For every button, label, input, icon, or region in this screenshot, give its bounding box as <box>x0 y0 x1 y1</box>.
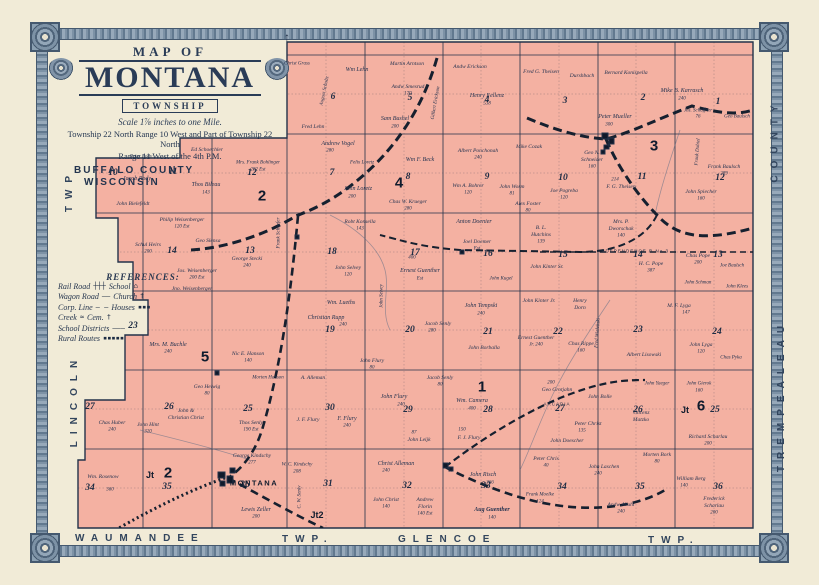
section-number: 28 <box>483 405 493 415</box>
section-number: 3 <box>563 96 568 106</box>
parcel-label: John Bolle <box>588 394 612 400</box>
parcel-label: 160 <box>697 197 705 202</box>
section-number: 8 <box>406 172 411 182</box>
parcel-label: Matzko <box>633 417 649 423</box>
plat-map-page: DOVER TWP. WAUMANDEE TWP. GLENCOE TWP. T… <box>0 0 819 585</box>
section-number: 2 <box>641 93 646 103</box>
school-district-number: Jt2 <box>310 510 323 520</box>
section-number: 36 <box>713 482 723 492</box>
parcel-label: 143 <box>202 191 210 196</box>
parcel-label: Christ Alleman <box>378 461 414 467</box>
section-number: 27 <box>85 402 95 412</box>
section-number: 23 <box>633 325 643 335</box>
parcel-label: Peter Christ <box>574 421 601 427</box>
parcel-label: Martin Arntson <box>390 61 424 67</box>
section-number: 17 <box>410 248 420 258</box>
parcel-label: 140 <box>488 516 496 521</box>
parcel-label: 240 <box>339 323 347 328</box>
parcel-label: John Schman <box>685 281 712 286</box>
section-number: 21 <box>483 327 493 337</box>
parcel-label: Fred G. Theisen <box>523 69 559 75</box>
section-number: 7 <box>330 168 335 178</box>
section-number: 14 <box>633 250 643 260</box>
parcel-label: Frank Baulsch <box>708 164 741 170</box>
parcel-label: Albert Ponchonah <box>458 148 498 154</box>
parcel-label: Andw Erickson <box>453 64 486 70</box>
parcel-label: John Leijk <box>407 437 430 443</box>
parcel-label: Nic E. Hanson <box>232 351 264 357</box>
parcel-label: 200 <box>348 195 356 200</box>
parcel-label: Aug Guenther <box>474 507 510 513</box>
parcel-label: Lewis Zeller <box>241 507 271 513</box>
parcel-label: Frank Dubiel <box>694 138 701 165</box>
parcel-label: 240 <box>594 472 602 477</box>
parcel-label: 200 <box>710 511 718 516</box>
parcel-label: William Berg <box>677 476 706 482</box>
parcel-label: 40 <box>544 464 549 469</box>
parcel-label: Wm Lehn <box>346 67 369 73</box>
parcel-label: 76 <box>696 115 701 120</box>
section-number: 26 <box>633 405 643 415</box>
parcel-label: Ed Schoechler <box>191 147 223 153</box>
parcel-label: 400 <box>468 407 476 412</box>
section-number: 13 <box>713 250 723 260</box>
parcel-label: John Loretz <box>344 186 372 192</box>
parcel-label: 208 <box>293 470 301 475</box>
parcel-label: Mike Cozak <box>516 144 542 150</box>
parcel-label: Peter Rody <box>130 155 152 160</box>
parcel-label: Andrew Vogel <box>321 141 354 147</box>
parcel-label: Christian Rupp <box>308 315 345 321</box>
parcel-label: 120 <box>560 196 568 201</box>
section-number: 23 <box>128 321 138 331</box>
section-number: 5 <box>408 93 413 103</box>
parcel-label: Schul Heirs <box>135 242 161 248</box>
parcel-label: Frank Schaefer <box>277 218 282 249</box>
parcel-label: Christ Grass <box>284 62 310 67</box>
parcel-label: Felix Loretz <box>350 161 374 166</box>
parcel-label: 240 <box>617 510 625 515</box>
parcel-label: Henry <box>573 298 587 304</box>
section-number: 20 <box>405 325 415 335</box>
parcel-label: Frederick <box>703 496 724 502</box>
parcel-label: 120 Est <box>174 225 189 230</box>
parcel-label: Geo N. <box>584 150 600 156</box>
school-district-number: Jt <box>146 470 154 480</box>
parcel-label: Chas Huber <box>99 420 126 426</box>
section-number: 18 <box>327 247 337 257</box>
parcel-label: 387 <box>647 269 655 274</box>
section-number: 16 <box>483 249 493 259</box>
parcel-label: John Christ <box>373 497 399 503</box>
parcel-label: Mrs. Frank Bohlinger <box>236 161 280 166</box>
parcel-label: Albert Lisowski <box>627 352 661 358</box>
section-number: 12 <box>247 168 257 178</box>
parcel-label: John Kugel <box>490 277 513 282</box>
school-district-number: 2 <box>164 465 172 482</box>
parcel-label: 240 <box>108 428 116 433</box>
parcel-label: Jno. Weisenberger <box>172 286 213 292</box>
parcel-label: George Stecki <box>232 256 263 262</box>
parcel-label: Jacob Senly <box>427 375 453 381</box>
parcel-label: 120 <box>697 350 705 355</box>
section-number: 22 <box>553 327 563 337</box>
parcel-label: Peter Chris <box>533 456 559 462</box>
section-number: 34 <box>557 482 567 492</box>
parcel-label: Dorn <box>574 305 586 311</box>
parcel-label: 80 <box>370 366 375 371</box>
parcel-label: Bernard Konispella <box>604 70 647 76</box>
parcel-label: George Kindschy <box>233 453 271 459</box>
parcel-label: Wm A. Bohrer <box>452 183 483 189</box>
parcel-label: Peter Mueller <box>598 114 632 120</box>
parcel-label: H. C. Pope <box>639 261 663 267</box>
section-number: 31 <box>323 479 333 489</box>
parcel-label: Frank Moelke <box>526 493 554 498</box>
parcel-label: August Schultz <box>319 76 330 106</box>
parcel-label: Wm. Lueths <box>327 300 355 306</box>
school-district-number: Jt <box>681 405 689 415</box>
parcel-label: Hutchins <box>531 232 551 238</box>
parcel-label: 140 Est <box>417 512 432 517</box>
parcel-label: 240 <box>477 312 485 317</box>
parcel-label: 160 <box>695 389 703 394</box>
parcel-label: 120 <box>344 273 352 278</box>
parcel-label: F. G. Theisen <box>606 184 635 190</box>
parcel-label: Chas W. Krueger <box>389 199 427 205</box>
section-number: 11 <box>638 172 647 182</box>
parcel-label: 280 <box>326 149 334 154</box>
parcel-label: 81 <box>510 192 515 197</box>
parcel-label: Wm F. Beck <box>406 157 434 163</box>
parcel-label: 200 <box>704 442 712 447</box>
parcel-label: 150 <box>458 428 466 433</box>
parcel-label: Ernest Guenther <box>518 335 555 341</box>
section-number: 25 <box>243 404 253 414</box>
parcel-label: B. L. <box>536 225 547 231</box>
parcel-label: Florin <box>418 504 432 510</box>
school-district-number: 5 <box>201 349 209 366</box>
parcel-label: F. J. Flury <box>458 435 481 441</box>
parcel-label: Jos. Weisenberger <box>177 268 217 274</box>
parcel-label: 200 Est <box>189 276 204 281</box>
parcel-label: J. F. Flury <box>297 417 320 423</box>
section-number: 30 <box>325 403 335 413</box>
parcel-label: Schneider <box>581 157 603 163</box>
parcel-label: John Lyga <box>690 342 713 348</box>
parcel-label: John Flury <box>360 358 384 364</box>
parcel-label: John Gierok <box>687 382 712 387</box>
parcel-label: Geo Slensa <box>196 238 221 244</box>
parcel-label: Philip Weisenberger <box>160 217 205 223</box>
parcel-label: John Risch <box>470 472 497 478</box>
parcel-label: John Laschen <box>589 464 619 470</box>
parcel-label: John Spiecher <box>685 189 716 195</box>
parcel-label: Fred Lehn <box>302 124 325 130</box>
parcel-label: 200 <box>694 261 702 266</box>
parcel-label: Geo Helwig <box>194 384 220 390</box>
parcel-label: 280 <box>404 207 412 212</box>
section-number: 14 <box>167 246 177 256</box>
parcel-label: John Kinter Sr. <box>530 264 563 270</box>
school-district-number: 6 <box>697 398 705 415</box>
parcel-label: 360 <box>106 488 114 493</box>
parcel-label: 190 Est <box>243 428 258 433</box>
parcel-label: Ernest Guenther <box>400 268 440 274</box>
parcel-label: Wm. Camera <box>456 398 488 404</box>
parcel-label: Christian Christ <box>168 415 204 421</box>
section-number: 6 <box>331 92 336 102</box>
parcel-label: 120 <box>464 191 472 196</box>
parcel-label: Andw Smesrud <box>392 84 425 90</box>
section-number: 15 <box>558 250 568 260</box>
section-number: 19 <box>325 325 335 335</box>
parcel-label: 80 <box>438 383 443 388</box>
parcel-label: Geo Baulsch <box>724 115 750 120</box>
section-number: 10 <box>108 168 118 178</box>
parcel-label: Robt Konsella <box>344 219 375 225</box>
parcel-label: Est <box>474 247 480 252</box>
parcel-label: 200 <box>144 250 152 255</box>
parcel-label: 200 <box>391 125 399 130</box>
parcel-label: 320 <box>144 430 152 435</box>
parcel-label: Geo Grotjahn <box>542 387 573 393</box>
parcel-label: John Tempski <box>465 303 498 309</box>
parcel-label: Thos Bileau <box>192 182 221 188</box>
parcel-label: 140 <box>617 234 625 239</box>
parcel-label: 240 <box>343 424 351 429</box>
section-number: 35 <box>162 482 172 492</box>
parcel-label: 160 <box>588 165 596 170</box>
parcel-label: John Kinter Jr. <box>523 298 556 304</box>
parcel-label: John Selvey <box>380 284 385 308</box>
section-number: 27 <box>555 404 565 414</box>
parcel-label: Wm. Rosenow <box>87 474 118 480</box>
parcel-label: 240 <box>243 264 251 269</box>
parcel-label: 124 <box>536 500 544 505</box>
parcel-label: Fred Wielebski <box>594 318 602 348</box>
parcel-label: John Hint <box>137 422 159 428</box>
parcel-label: 139 <box>537 240 545 245</box>
parcel-label: 280 <box>428 329 436 334</box>
school-district-number: 1 <box>478 379 486 396</box>
parcel-label: C. W. Senly <box>298 486 303 509</box>
parcel-label: 240 <box>474 156 482 161</box>
parcel-label: Durshbach <box>570 73 594 79</box>
parcel-label: Mrs. M. Buchle <box>149 342 186 348</box>
parcel-label: 200 <box>547 381 555 386</box>
parcel-label: Joel Doemer <box>463 239 491 245</box>
parcel-label: 240 <box>164 350 172 355</box>
parcel-label: 87 <box>412 431 417 436</box>
parcel-label: John Klees <box>726 285 748 290</box>
parcel-label: Est <box>417 277 423 282</box>
school-district-number: 3 <box>650 138 658 155</box>
parcel-label: Chas Pyka <box>720 356 742 361</box>
section-number: 1 <box>716 97 721 107</box>
parcel-label: John Flury <box>381 394 408 400</box>
section-number: 29 <box>403 405 413 415</box>
parcel-label: John Borballa <box>468 345 500 351</box>
section-number: 9 <box>485 172 490 182</box>
map-label-layer: Ed SchoechlerPeter RodyJacob RodyJohn Bi… <box>0 0 819 585</box>
parcel-label: 240 <box>382 469 390 474</box>
parcel-label: 140 <box>680 484 688 489</box>
section-number: 33 <box>481 481 491 491</box>
parcel-label: A. Alleman <box>301 375 325 381</box>
parcel-label: W. C. Kindschy <box>282 463 313 468</box>
village-name-label: MONTANA <box>230 479 278 488</box>
section-number: 11 <box>169 167 178 177</box>
parcel-label: Thos Senly <box>239 420 263 426</box>
parcel-label: M. F. Lyga <box>667 303 691 309</box>
parcel-label: Mrs. P. <box>613 219 629 225</box>
parcel-label: 80 <box>655 460 660 465</box>
parcel-label: 200 <box>252 515 260 520</box>
parcel-label: Morten Bork <box>643 452 671 458</box>
parcel-label: John Yaeger <box>645 382 670 387</box>
parcel-label: 214 <box>611 178 619 183</box>
parcel-label: Chas Pope <box>686 253 710 259</box>
section-number: 13 <box>245 246 255 256</box>
parcel-label: Andw Abuhl <box>608 502 635 508</box>
parcel-label: Alex Foster <box>515 201 541 207</box>
parcel-label: Jos. Schaffner <box>684 109 712 114</box>
parcel-label: John Doescher <box>550 438 583 444</box>
parcel-label: Richard Scharlau <box>689 434 728 440</box>
section-number: 12 <box>715 173 725 183</box>
parcel-label: Joe Baulsch <box>720 264 744 269</box>
parcel-label: Andrew <box>417 497 434 503</box>
section-number: 35 <box>635 482 645 492</box>
parcel-label: Gilbert Erickson <box>431 86 442 120</box>
parcel-label: 147 <box>682 311 690 316</box>
section-number: 24 <box>712 327 722 337</box>
section-number: 25 <box>710 405 720 415</box>
school-district-number: 2 <box>258 188 266 205</box>
parcel-label: Jr. 240 <box>529 343 543 348</box>
parcel-label: Dworschak <box>608 226 633 232</box>
parcel-label: Joe Pogreba <box>550 188 578 194</box>
parcel-label: F. Flury <box>337 416 356 422</box>
parcel-label: 160 <box>577 349 585 354</box>
section-number: 4 <box>485 95 490 105</box>
section-number: 34 <box>85 483 95 493</box>
parcel-label: 80 <box>205 392 210 397</box>
parcel-label: 140 <box>382 505 390 510</box>
parcel-label: Anton Doenier <box>456 219 492 225</box>
parcel-label: John & <box>178 408 194 414</box>
parcel-label: Chas Rippe <box>568 341 594 347</box>
parcel-label: 240 <box>678 97 686 102</box>
parcel-label: 80 <box>526 209 531 214</box>
parcel-label: 300 <box>605 123 613 128</box>
parcel-label: 140 <box>244 359 252 364</box>
parcel-label: John Bielefeldt <box>116 201 149 207</box>
parcel-label: John Selvey <box>335 265 361 271</box>
section-number: 26 <box>164 402 174 412</box>
section-number: 10 <box>558 173 568 183</box>
section-number: 32 <box>402 481 412 491</box>
parcel-label: Scharlau <box>704 503 724 509</box>
parcel-label: Jacob Rody <box>123 176 151 182</box>
parcel-label: Sam Bushel <box>381 116 409 122</box>
parcel-label: 277 <box>248 461 256 466</box>
parcel-label: Jacob Senly <box>425 321 451 327</box>
parcel-label: Morten Hanson <box>252 376 284 381</box>
parcel-label: John Worm <box>499 184 524 190</box>
parcel-label: 143 <box>356 227 364 232</box>
parcel-label: Mike B. Karrasch <box>661 88 704 94</box>
school-district-number: 4 <box>395 175 403 192</box>
parcel-label: 135 <box>578 429 586 434</box>
